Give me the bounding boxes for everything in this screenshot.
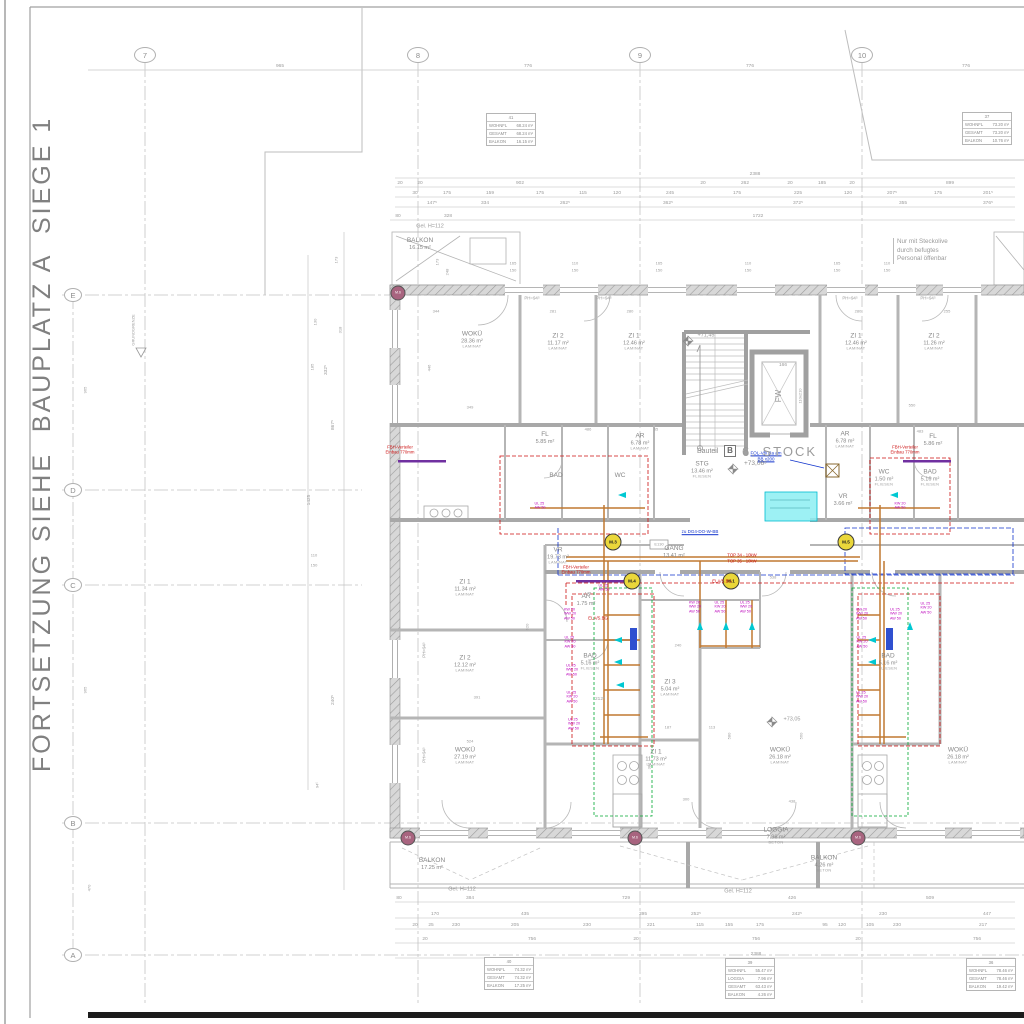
dim-text: 447 <box>983 912 991 918</box>
room-ra: 11.34 m² <box>454 586 475 593</box>
pipe-label-stack: UL 25 KW 20 AW 50 <box>856 635 867 648</box>
dim-text: 438 <box>789 800 796 805</box>
room-rf: LAMINAT <box>769 761 791 766</box>
storey-title: 6. STOCK <box>742 444 817 459</box>
room-ra: 5.16 m² <box>581 660 600 667</box>
dim-text: 538 <box>770 576 777 581</box>
dim-text: 756 <box>973 937 981 943</box>
dim-text: 280 <box>855 310 862 315</box>
dim-text: 486 <box>585 428 592 433</box>
dim-text: 902 <box>516 181 524 187</box>
pipe-label-stack: UL 25 WW 20 AW 50 <box>566 663 578 676</box>
dim-text: 95 <box>822 923 827 929</box>
room-rn: BALKON <box>419 857 445 865</box>
dim-text: 362⁵ <box>663 201 673 207</box>
area-table-number: 36 <box>967 959 1015 966</box>
room-rn: ZI 2 <box>923 333 944 341</box>
area-table-number: 40 <box>485 958 533 965</box>
room-label: WC <box>615 472 626 480</box>
dim-text: 20 <box>787 181 792 187</box>
room-rn: ZI 1 <box>454 579 475 587</box>
dim-text: 94⁵ <box>316 782 321 788</box>
dim-text: 30 <box>412 191 417 197</box>
dim-text: 300 <box>683 798 690 803</box>
elevator-dim: 166 <box>779 363 787 369</box>
room-ra: 3.66 m² <box>834 501 853 508</box>
room-ra: 6.78 m² <box>836 438 855 445</box>
dim-text: 245 <box>666 191 674 197</box>
area-table-number: 37 <box>963 113 1011 120</box>
dim-text: 262 <box>741 181 749 187</box>
room-ra: 26.18 m² <box>947 754 969 761</box>
annotation-blue: zu DG4-DO-W-BB <box>682 529 719 535</box>
dim-text: 334 <box>481 201 489 207</box>
dim-text: 580 <box>728 733 733 740</box>
sheet-edge-bar <box>88 1012 1024 1018</box>
dim-text: 155 <box>725 923 733 929</box>
dim-text: 150 <box>572 269 579 274</box>
shaft-marker-pink: M.6 <box>628 831 643 846</box>
room-ra: 11.26 m² <box>923 340 944 347</box>
room-rf: LAMINAT <box>454 593 475 598</box>
dim-text: 965 <box>84 687 89 694</box>
dim-text: 217 <box>979 923 987 929</box>
grid-row-marker: E <box>64 288 82 302</box>
room-rn: WOKÜ <box>769 747 791 755</box>
room-label: WOKÜ26.18 m²LAMINAT <box>947 747 969 766</box>
elevator-dim: 110x210 <box>799 388 804 403</box>
dim-text: 483 <box>917 430 924 435</box>
dim-text: 230 <box>583 923 591 929</box>
bauteil-letter: B <box>724 445 736 457</box>
room-ra: 26.18 m² <box>769 754 791 761</box>
grid-column-marker: 8 <box>407 47 429 63</box>
room-rn: WC <box>875 469 894 477</box>
boundary-label: GRUNDGRENZE <box>132 314 137 345</box>
storey-level: +73,06⁵ <box>744 460 767 467</box>
dim-text: 899 <box>946 181 954 187</box>
dim-text: 255 <box>944 310 951 315</box>
room-ra: 12.46 m² <box>845 340 867 347</box>
dim-text: 221 <box>647 923 655 929</box>
dim-text: 560 <box>800 733 805 740</box>
dim-text: 20 <box>397 181 402 187</box>
dim-text: 332⁵ <box>324 365 330 375</box>
room-ra: 19.73 m² <box>547 554 569 561</box>
area-table-row: WOHNFL55.47 m² <box>726 966 774 974</box>
room-ra: 13.46 m² <box>691 468 713 475</box>
grid-column-marker: 10 <box>851 47 873 63</box>
room-rn: BALKON <box>407 237 433 245</box>
dim-text: 147⁵ <box>427 201 437 207</box>
room-label: BAD5.16 m²FLIESEN <box>879 653 898 672</box>
dim-text: 173 <box>335 257 340 264</box>
dim-text: 187 <box>665 726 672 731</box>
dim-text: 281 <box>550 310 557 315</box>
grid-dim: 776 <box>962 64 970 70</box>
room-ra: 27.19 m² <box>454 754 476 761</box>
dim-text: 1722 <box>753 214 764 220</box>
area-table-row: BALKON16.15 m² <box>487 137 535 145</box>
annotation-red: TOP 35 - 10kW <box>727 558 756 563</box>
dim-text: 240 <box>675 644 682 649</box>
dim-text: 65 <box>654 428 658 433</box>
dim-text: 729 <box>622 896 630 902</box>
level-label: +71,45 <box>698 333 715 340</box>
door-height-label: PH=94⁵ <box>596 295 611 300</box>
dim-text: 120 <box>613 191 621 197</box>
floor-plan-sheet: BALKON16.15 m²WOKÜ28.36 m²LAMINATZI 211.… <box>0 0 1024 1024</box>
dim-text: 470 <box>88 885 93 892</box>
dim-text: 965 <box>84 387 89 394</box>
room-rf: BETON <box>811 869 837 874</box>
room-label: FL5.85 m² <box>536 431 555 445</box>
shaft-marker-pink: M.6 <box>401 831 416 846</box>
room-rn: GANG <box>663 545 685 553</box>
area-table: 39WOHNFL55.47 m²LOGGIA7.96 m²GESAMT63.43… <box>725 958 775 999</box>
dim-text: 207⁵ <box>887 191 897 197</box>
survey-marker-yellow: M.4 <box>624 573 641 590</box>
dim-text: 170 <box>431 912 439 918</box>
room-label: VR3.66 m² <box>834 493 853 507</box>
shaft-marker-pink: M.6 <box>391 286 406 301</box>
dim-text: 426 <box>788 896 796 902</box>
dim-text: 384 <box>466 896 474 902</box>
grid-row-marker: C <box>64 578 82 592</box>
dim-text: 113 <box>709 726 715 731</box>
bauteil-label: Bauteil <box>697 448 718 455</box>
room-ra: 6.78 m² <box>631 440 650 447</box>
grid-dim: 776 <box>524 64 532 70</box>
dim-text: 20 <box>700 181 705 187</box>
dim-text: 165 <box>834 262 841 267</box>
room-rn: VR <box>834 493 853 501</box>
room-rn: BAD <box>921 469 940 477</box>
dim-text: 867⁵ <box>331 420 337 430</box>
room-label: BALKON16.15 m² <box>407 237 433 251</box>
room-label: WOKÜ26.18 m²LAMINAT <box>769 747 791 766</box>
pipe-label-stack: UL 25 AW 50 <box>535 502 546 511</box>
dim-text: 391 <box>474 696 481 701</box>
dim-text: 165 <box>656 262 663 267</box>
room-rn: WOKÜ <box>454 747 476 755</box>
room-rf: LAMINAT <box>845 347 867 352</box>
area-table: 37WOHNFL73.20 m²GESAMT73.20 m²BALKON10.7… <box>962 112 1012 145</box>
access-note: Nur mit Steckolive durch befugtes Person… <box>893 238 948 264</box>
pipe-label-stack: UL 25 WW 20 AW 50 <box>890 607 902 620</box>
dim-text: 225 <box>794 191 802 197</box>
room-rn: ZI 1 <box>845 333 867 341</box>
room-label: BAD5.16 m²FLIESEN <box>581 653 600 672</box>
dim-text: 2388 <box>750 172 761 178</box>
annotation-red: ELA/S.BG <box>712 578 732 583</box>
elevator-label: FW <box>774 390 784 402</box>
room-label: WOKÜ27.19 m²LAMINAT <box>454 747 476 766</box>
dim-text: 376⁵ <box>983 201 993 207</box>
pipe-label-stack: UL 25 KW 20 AW 50 <box>564 635 575 648</box>
room-rn: BALKON <box>811 855 837 863</box>
pipe-label-stack: KW 20 WW 20 AW 50 <box>689 600 701 613</box>
dim-text: 2388 <box>751 952 762 958</box>
room-ra: 16.15 m² <box>407 245 433 252</box>
grid-dim: 776 <box>746 64 754 70</box>
room-rf: LAMINAT <box>547 347 568 352</box>
dim-text: 349 <box>467 406 474 411</box>
room-label: ZI 211.17 m²LAMINAT <box>547 333 568 352</box>
dim-text: 20 <box>412 923 417 929</box>
dim-text: 240⁵ <box>331 695 337 705</box>
fire-rating-box: E130 <box>654 542 663 547</box>
annotation-red: ELA/S.BG <box>588 615 608 620</box>
room-label: LOGGIA7.96 m²BETON <box>764 827 789 846</box>
dim-text: 756 <box>752 937 760 943</box>
area-table-row: GESAMT74.32 m² <box>485 973 533 981</box>
dim-text: 173 <box>436 259 441 266</box>
room-ra: 4.26 m² <box>811 862 837 869</box>
dim-text: 395 <box>639 912 647 918</box>
room-label: ZI 212.12 m²LAMINAT <box>454 655 476 674</box>
room-rn: ZI 3 <box>661 679 680 687</box>
room-ra: 1.75 m² <box>577 601 596 608</box>
dim-text: 248 <box>446 269 451 276</box>
pipe-label-stack: KW 20 AW 50 <box>894 502 905 511</box>
room-rn: AR <box>836 431 855 439</box>
dim-text: 175 <box>756 923 764 929</box>
room-rn: WOKÜ <box>461 331 483 339</box>
dim-text: 20 <box>633 937 638 943</box>
grid-row-marker: B <box>64 816 82 830</box>
dim-text: 205 <box>511 923 519 929</box>
dim-text: 150 <box>656 269 663 274</box>
pipe-label-stack: UL 25 KW 20 AW 50 <box>920 601 931 614</box>
annotation-red: FBH-Verteiler Einbau 770mm <box>562 565 591 576</box>
room-ra: 17.25 m² <box>419 865 445 872</box>
dim-text: 435 <box>521 912 529 918</box>
room-rf: BETON <box>764 841 789 846</box>
dim-text: 20 <box>849 181 854 187</box>
dim-text: 262⁵ <box>560 201 570 207</box>
room-rn: AR <box>631 433 650 441</box>
area-table-number: 39 <box>726 959 774 966</box>
area-table-row: GESAMT78.46 m² <box>967 974 1015 982</box>
dim-text: 130 <box>314 319 319 326</box>
dim-text: 150 <box>834 269 841 274</box>
room-ra: 12.46 m² <box>623 340 645 347</box>
room-rn: VR <box>547 547 569 555</box>
room-label: WOKÜ28.36 m²LAMINAT <box>461 331 483 350</box>
plan-labels-layer: BALKON16.15 m²WOKÜ28.36 m²LAMINATZI 211.… <box>0 0 1024 1024</box>
room-label: BALKON17.25 m² <box>419 857 445 871</box>
room-rf: LAMINAT <box>631 447 650 452</box>
room-rf: LAMINAT <box>947 761 969 766</box>
dim-text: 110 <box>745 262 751 267</box>
room-rf: LAMINAT <box>923 347 944 352</box>
dim-text: 20 <box>422 937 427 943</box>
pipe-label-stack: KW 20 WW 20 AW 50 <box>564 607 576 620</box>
area-table-row: BALKON10.76 m² <box>963 136 1011 144</box>
room-rf: LAMINAT <box>623 347 645 352</box>
dim-text: 20 <box>855 937 860 943</box>
room-label: FL5.86 m² <box>924 433 943 447</box>
grid-column-marker: 9 <box>629 47 651 63</box>
room-rn: ZI 2 <box>454 655 476 663</box>
grid-row-marker: A <box>64 948 82 962</box>
room-rn: WOKÜ <box>947 747 969 755</box>
annotation-red: FBH-Verteiler Einbau 770mm <box>386 445 415 456</box>
dim-text: 105 <box>866 923 874 929</box>
dim-text: 175 <box>585 592 592 597</box>
continuation-note: FORTSETZUNG SIEHE BAUPLATZ A SIEGE 1 <box>28 302 57 772</box>
room-label: ZI 112.46 m²LAMINAT <box>845 333 867 352</box>
dim-text: 150 <box>745 269 752 274</box>
area-table-row: GESAMT73.20 m² <box>963 128 1011 136</box>
area-table: 41WOHNFL68.24 m²GESAMT68.24 m²BALKON16.1… <box>486 113 536 146</box>
area-table: 36WOHNFL78.46 m²GESAMT78.46 m²BALKON19.4… <box>966 958 1016 991</box>
dim-text: 1425 <box>307 495 313 506</box>
room-ra: 5.04 m² <box>661 686 680 693</box>
dim-text: 446 <box>428 365 433 372</box>
pipe-label-stack: KW 20 WW 20 AW 50 <box>856 607 868 620</box>
door-height-label: PH=94⁵ <box>842 295 857 300</box>
room-rn: LOGGIA <box>764 827 789 835</box>
dim-text: 20 <box>417 181 422 187</box>
door-height-label: PH=94⁵ <box>421 747 426 762</box>
pipe-label-stack: UL 25 WW 20 AW 50 <box>740 600 752 613</box>
dim-text: 328 <box>444 214 452 220</box>
grid-dim: 965 <box>276 64 284 70</box>
dim-text: 110 <box>311 554 317 559</box>
dim-text: 110 <box>572 262 578 267</box>
room-label: VR19.73 m²LAMINAT <box>547 547 569 566</box>
room-rn: ZI 1 <box>623 333 645 341</box>
room-label: BAD5.16 m²FLIESEN <box>921 469 940 488</box>
room-rn: WC <box>615 472 626 480</box>
dim-text: 355 <box>899 201 907 207</box>
dim-text: 175 <box>934 191 942 197</box>
room-label: AR6.78 m²LAMINAT <box>631 433 650 452</box>
dim-text: 185 <box>311 364 316 371</box>
dim-text: 80 <box>396 896 401 902</box>
dim-text: 115 <box>696 923 704 929</box>
room-ra: 5.86 m² <box>924 441 943 448</box>
dim-text: 509 <box>926 896 934 902</box>
room-ra: 12.12 m² <box>454 662 476 669</box>
survey-marker-yellow: M.3 <box>605 534 622 551</box>
dim-text: 25 <box>428 923 433 929</box>
dim-text: 150 <box>510 269 517 274</box>
room-label: BAD <box>549 472 562 480</box>
room-rf: FLIESEN <box>921 483 940 488</box>
room-label: WC1.50 m²FLIESEN <box>875 469 894 488</box>
dim-text: 524 <box>467 740 474 745</box>
room-ra: 7.96 m² <box>764 834 789 841</box>
dim-text: 165 <box>510 262 517 267</box>
area-table-row: BALKON17.25 m² <box>485 981 533 989</box>
room-label: ZI 111.34 m²LAMINAT <box>454 579 475 598</box>
area-table-row: GESAMT68.24 m² <box>487 129 535 137</box>
room-ra: 28.36 m² <box>461 338 483 345</box>
room-rn: BAD <box>879 653 898 661</box>
area-table-row: WOHNFL74.32 m² <box>485 965 533 973</box>
dim-text: 201⁵ <box>983 191 993 197</box>
area-table-row: LOGGIA7.96 m² <box>726 974 774 982</box>
dim-text: 550 <box>909 404 916 409</box>
room-rn: FL <box>536 431 555 439</box>
room-rf: LAMINAT <box>454 761 476 766</box>
dim-text: 80 <box>395 214 400 220</box>
dim-text: 756 <box>528 937 536 943</box>
railing-height-note: Gel. H=112 <box>448 887 476 894</box>
room-ra: 13.41 m² <box>663 553 685 560</box>
room-rf: FLIESEN <box>875 483 894 488</box>
door-height-label: PH=94⁵ <box>524 295 539 300</box>
room-rf: FLIESEN <box>691 475 713 480</box>
room-label: BALKON4.26 m²BETON <box>811 855 837 874</box>
room-label: ZI 35.04 m²LAMINAT <box>661 679 680 698</box>
dim-text: 120 <box>838 923 846 929</box>
room-rn: ZI 2 <box>547 333 568 341</box>
pipe-label-stack: UL 25 WW 20 AW 50 <box>568 717 580 730</box>
room-ra: 11.17 m² <box>547 340 568 347</box>
pipe-label-stack: UL 25 KW 20 AW 50 <box>714 600 725 613</box>
pipe-label-stack: UL 25 AW 50 <box>599 584 610 593</box>
dim-text: 242⁵ <box>792 912 802 918</box>
grid-column-marker: 7 <box>134 47 156 63</box>
room-rn: BAD <box>581 653 600 661</box>
area-table-row: WOHNFL78.46 m² <box>967 966 1015 974</box>
dim-text: 115 <box>579 191 587 197</box>
room-ra: 1.50 m² <box>875 476 894 483</box>
dim-text: 185 <box>818 181 826 187</box>
room-ra: 5.85 m² <box>536 439 555 446</box>
pipe-label-stack: UL 25 WW 20 AW 50 <box>856 690 868 703</box>
grid-row-marker: D <box>64 483 82 497</box>
survey-marker-yellow: M.5 <box>838 534 855 551</box>
dim-text: 159 <box>486 191 494 197</box>
dim-text: 175 <box>733 191 741 197</box>
area-table-row: WOHNFL73.20 m² <box>963 120 1011 128</box>
dim-text: 252⁵ <box>691 912 701 918</box>
room-label: STG13.46 m²FLIESEN <box>691 461 713 480</box>
dim-text: 212⁵ <box>595 697 605 703</box>
dim-text: 230 <box>893 923 901 929</box>
dim-text: 110 <box>884 262 890 267</box>
shaft-marker-pink: M.6 <box>851 831 866 846</box>
room-label: AR6.78 m²LAMINAT <box>836 431 855 450</box>
room-rn: STG <box>691 461 713 469</box>
room-rn: ZI 1 <box>645 749 666 757</box>
dim-text: 344 <box>433 310 440 315</box>
room-rf: FLIESEN <box>879 667 898 672</box>
area-table: 40WOHNFL74.32 m²GESAMT74.32 m²BALKON17.2… <box>484 957 534 990</box>
area-table-row: GESAMT63.43 m² <box>726 982 774 990</box>
room-rn: BAD <box>549 472 562 480</box>
annotation-red: FBH-Verteiler Einbau 770mm <box>891 445 920 456</box>
dim-text: 175 <box>536 191 544 197</box>
level-label: +73,05 <box>784 717 801 724</box>
door-height-label: PH=94⁵ <box>920 295 935 300</box>
dim-text: 318 <box>339 327 344 334</box>
room-label: ZI 211.26 m²LAMINAT <box>923 333 944 352</box>
room-rf: LAMINAT <box>461 345 483 350</box>
dim-text: 620 <box>526 624 531 631</box>
room-rf: LAMINAT <box>661 693 680 698</box>
area-table-row: WOHNFL68.24 m² <box>487 121 535 129</box>
dim-text: 280 <box>627 310 634 315</box>
room-label: ZI 112.46 m²LAMINAT <box>623 333 645 352</box>
railing-height-note: Gel. H=112 <box>724 889 752 896</box>
dim-text: 120 <box>844 191 852 197</box>
